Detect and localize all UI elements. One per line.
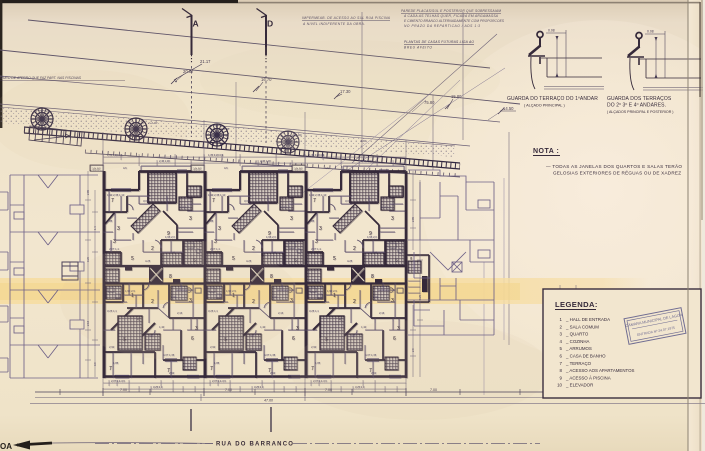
svg-text:NOTA :: NOTA : <box>533 148 559 155</box>
svg-text:7.00: 7.00 <box>120 388 127 392</box>
svg-text:3.20: 3.20 <box>86 256 90 262</box>
svg-text:A: A <box>193 19 199 29</box>
svg-text:A NIVEL INDIFERENTE DA OBRA.: A NIVEL INDIFERENTE DA OBRA. <box>302 22 365 26</box>
svg-text:RUA DO BARRANCO: RUA DO BARRANCO <box>216 442 294 448</box>
svg-text:GUARDA DO TERRAÇO DO 1ºANDAR: GUARDA DO TERRAÇO DO 1ºANDAR <box>507 96 598 102</box>
svg-text:1.4: 1.4 <box>93 226 97 230</box>
svg-text:2.85: 2.85 <box>86 189 90 195</box>
svg-text:( ALÇADO PRINCIPAL ): ( ALÇADO PRINCIPAL ) <box>524 104 565 108</box>
svg-text:D: D <box>267 19 273 29</box>
svg-text:_ ELEVADOR: _ ELEVADOR <box>565 383 593 388</box>
svg-text:E CIMENTO BRANCO ALTERNADAMENT: E CIMENTO BRANCO ALTERNADAMENTE COM PROP… <box>404 19 505 23</box>
svg-text:PAREDE PLACAS/SUL E POSTERIOR: PAREDE PLACAS/SUL E POSTERIOR QUE SOBRES… <box>401 9 501 13</box>
svg-text:NO PRAZO DA REPARTICAO / ADS 1: NO PRAZO DA REPARTICAO / ADS 1:3 <box>404 24 480 28</box>
svg-text:— TODAS AS JANELAS DOS QUARTOS: — TODAS AS JANELAS DOS QUARTOS E SALAS T… <box>546 163 682 169</box>
svg-text:GELOSIAS EXTERIORES DE RÉGUAS: GELOSIAS EXTERIORES DE RÉGUAS OU DE XADR… <box>553 170 681 176</box>
svg-text:3.9: 3.9 <box>93 362 97 366</box>
svg-text:_ ACESSO À PISCINA: _ ACESSO À PISCINA <box>565 375 611 380</box>
svg-text:14.50: 14.50 <box>503 106 514 111</box>
svg-text:PLANTAS DE CASAS FUTURAS LIGA: PLANTAS DE CASAS FUTURAS LIGA AO <box>404 40 474 44</box>
svg-text:IMPERMEAB. DE ACESSO AO SUL RU: IMPERMEAB. DE ACESSO AO SUL RUA PISCINA <box>302 16 391 20</box>
svg-text:7.00: 7.00 <box>430 388 437 392</box>
svg-text:47.60: 47.60 <box>264 399 273 403</box>
svg-text:20.07: 20.07 <box>183 69 194 74</box>
svg-text:_ COZINHA: _ COZINHA <box>565 339 589 344</box>
svg-text:2.16: 2.16 <box>86 320 90 326</box>
svg-text:4.25: 4.25 <box>418 294 422 300</box>
svg-text:7.00: 7.00 <box>225 388 232 392</box>
svg-text:_ TERRAÇO: _ TERRAÇO <box>565 361 592 366</box>
svg-text:10: 10 <box>557 383 562 388</box>
svg-text:_ QUARTO: _ QUARTO <box>565 332 589 337</box>
svg-text:LEGENDA:: LEGENDA: <box>555 300 598 309</box>
svg-text:_ CASA DE BANHO: _ CASA DE BANHO <box>565 354 606 359</box>
svg-text:A CADA AS TELHAS QUER, FICARA: A CADA AS TELHAS QUER, FICARA EM ARGAMAS… <box>403 14 499 18</box>
svg-text:_ ARRUMOS: _ ARRUMOS <box>565 346 592 351</box>
svg-text:_ HALL DE ENTRADA: _ HALL DE ENTRADA <box>565 317 610 322</box>
svg-text:7.00: 7.00 <box>325 388 332 392</box>
svg-text:_ ACESSO AOS APARTAMENTOS: _ ACESSO AOS APARTAMENTOS <box>565 368 635 373</box>
svg-text:2.85: 2.85 <box>411 216 415 222</box>
svg-text:0.08: 0.08 <box>548 29 555 33</box>
svg-text:GUARDA DOS TERRAÇOS: GUARDA DOS TERRAÇOS <box>607 96 672 102</box>
svg-text:_ SALA COMUM: _ SALA COMUM <box>565 324 599 329</box>
svg-text:DO 2º 3º E 4º ANDARES.: DO 2º 3º E 4º ANDARES. <box>607 103 666 109</box>
svg-text:OA: OA <box>0 442 12 451</box>
svg-text:( ALÇADOS PRINCIPAL E POSTERIO: ( ALÇADOS PRINCIPAL E POSTERIOR ) <box>607 110 674 114</box>
svg-text:2.9: 2.9 <box>411 348 415 352</box>
svg-text:4.00: 4.00 <box>360 139 366 143</box>
svg-text:21.17: 21.17 <box>200 59 211 64</box>
